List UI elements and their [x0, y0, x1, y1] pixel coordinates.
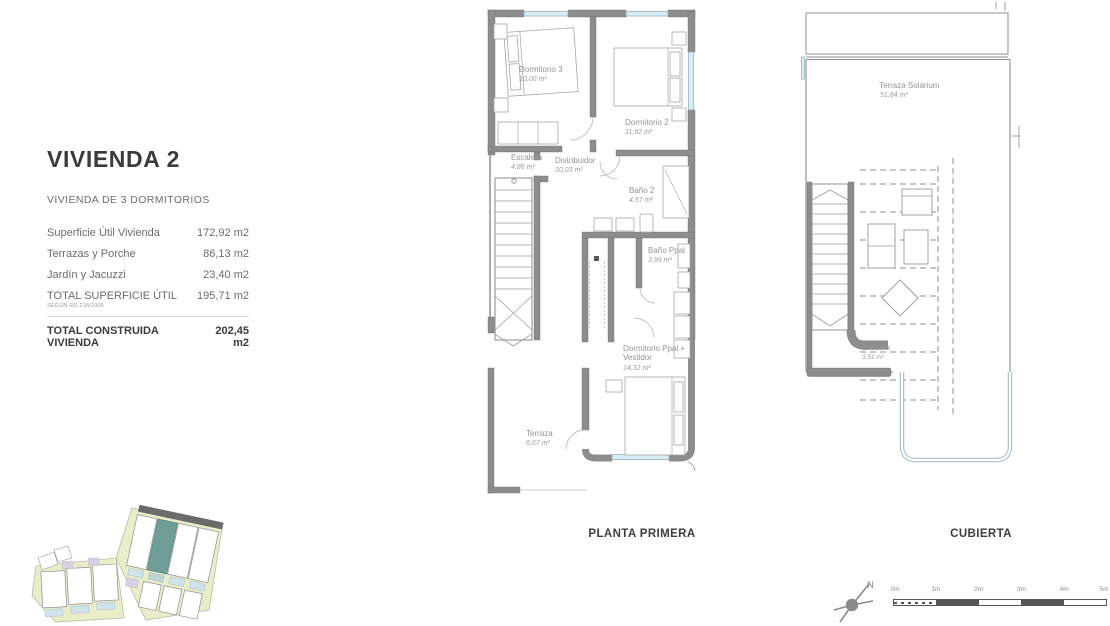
room-label: Terraza: [526, 429, 553, 438]
area-row-total-built: TOTAL CONSTRUIDA VIVIENDA 202,45 m2: [47, 325, 249, 349]
room-label: Dormitorio Ppal +: [623, 344, 685, 353]
room-area: 10,00 m²: [519, 76, 547, 83]
scale-tick-label: 5m: [1099, 586, 1108, 593]
area-value: 23,40 m2: [203, 269, 249, 281]
room-labels: Terraza Solarium 51,84 m² Escalera 3,51 …: [862, 81, 940, 361]
room-area: 51,84 m²: [880, 92, 908, 99]
area-value: 86,13 m2: [203, 248, 249, 260]
glass-parapet: [902, 372, 1010, 460]
window-icon: [626, 12, 668, 17]
floorplan-cubierta: Terraza Solarium 51,84 m² Escalera 3,51 …: [798, 0, 1040, 500]
area-value: 195,71 m2: [197, 290, 249, 302]
area-label: TOTAL SUPERFICIE ÚTIL: [47, 290, 177, 302]
room-label: Vestidor: [623, 353, 652, 362]
room-area: 4,57 m²: [629, 197, 653, 204]
room-area: 3,51 m²: [862, 354, 885, 361]
room-label: Baño 2: [629, 186, 655, 195]
scale-tick-label: 2m: [974, 586, 983, 593]
area-row: Terrazas y Porche 86,13 m2: [47, 248, 249, 260]
nightstand: [672, 32, 686, 45]
scale-segment: [937, 600, 980, 605]
sink: [616, 218, 634, 231]
wardrobe: [674, 316, 690, 338]
nightstand: [494, 98, 508, 112]
site-key-plan: [28, 498, 233, 624]
room-label: Dormitorio 2: [625, 118, 669, 127]
area-value: 202,45 m2: [200, 325, 249, 349]
table-diamond: [882, 280, 918, 316]
scale-tick-label: 1m: [931, 586, 940, 593]
sink: [594, 218, 612, 231]
compass-icon: N: [831, 577, 887, 626]
nightstand: [606, 380, 622, 392]
bed-dormitorio-ppal: [625, 377, 685, 455]
room-label: Escalera: [862, 343, 890, 352]
scale-tick-label: 4m: [1060, 586, 1069, 593]
area-row-total-util: TOTAL SUPERFICIE ÚTIL 195,71 m2: [47, 290, 249, 302]
room-area: 3,99 m²: [648, 257, 672, 264]
scale-segment: [1022, 600, 1065, 605]
area-row: Superficie Útil Vivienda 172,92 m2: [47, 227, 249, 239]
toilet: [640, 214, 653, 232]
nightstand: [494, 24, 507, 39]
scale-segment: [1064, 600, 1106, 605]
bed-dormitorio-2: [614, 48, 682, 106]
room-label: Escalera: [511, 153, 543, 162]
room-label: Distribuidor: [555, 156, 596, 165]
roof-furniture: [868, 189, 932, 316]
scale-tick-label: 3m: [1017, 586, 1026, 593]
regulation-note: SEGÚN RD 218/2005: [47, 303, 249, 309]
room-area: 14,32 m²: [623, 365, 651, 372]
scale-bar-segments: [893, 599, 1107, 606]
plan-title-planta-primera: PLANTA PRIMERA: [557, 528, 727, 540]
room-area: 11,92 m²: [625, 129, 653, 136]
area-label: Superficie Útil Vivienda: [47, 227, 160, 239]
wardrobe: [498, 122, 558, 144]
plan-title-cubierta: CUBIERTA: [896, 528, 1066, 540]
unit-title: VIVIENDA 2: [47, 146, 249, 173]
scale-segment: [979, 600, 1022, 605]
bed-dormitorio-3: [504, 28, 578, 97]
floorplan-sheet: VIVIENDA 2 VIVIENDA DE 3 DORMITORIOS Sup…: [0, 0, 1110, 626]
room-label: Terraza Solarium: [879, 81, 940, 90]
area-value: 172,92 m2: [197, 227, 249, 239]
room-label: Baño Ppal: [648, 246, 685, 255]
area-label: Jardín y Jacuzzi: [47, 269, 126, 281]
area-row: Jardín y Jacuzzi 23,40 m2: [47, 269, 249, 281]
info-panel: VIVIENDA 2 VIVIENDA DE 3 DORMITORIOS Sup…: [47, 146, 249, 358]
scale-tick-label: 0m: [890, 586, 899, 593]
staircase: [495, 178, 532, 346]
toilet: [678, 272, 690, 288]
room-area: 10,03 m²: [555, 167, 583, 174]
area-label: Terrazas y Porche: [47, 248, 136, 260]
window-icon: [524, 12, 568, 17]
window-icon: [689, 52, 694, 110]
wardrobe: [674, 292, 690, 314]
unit-subtitle: VIVIENDA DE 3 DORMITORIOS: [47, 194, 249, 206]
room-area: 6,67 m²: [526, 440, 550, 447]
north-label: N: [867, 580, 874, 591]
scale-bar: 0m 1m 2m 3m 4m 5m: [893, 586, 1107, 612]
area-label: TOTAL CONSTRUIDA VIVIENDA: [47, 325, 200, 349]
nightstand: [672, 108, 686, 121]
divider: [47, 316, 249, 317]
room-area: 4,86 m²: [511, 164, 535, 171]
room-label: Dormitorio 3: [519, 65, 563, 74]
floorplan-planta-primera: Dormitorio 3 10,00 m² Dormitorio 2 11,92…: [482, 0, 717, 500]
scale-segment: [894, 600, 937, 605]
